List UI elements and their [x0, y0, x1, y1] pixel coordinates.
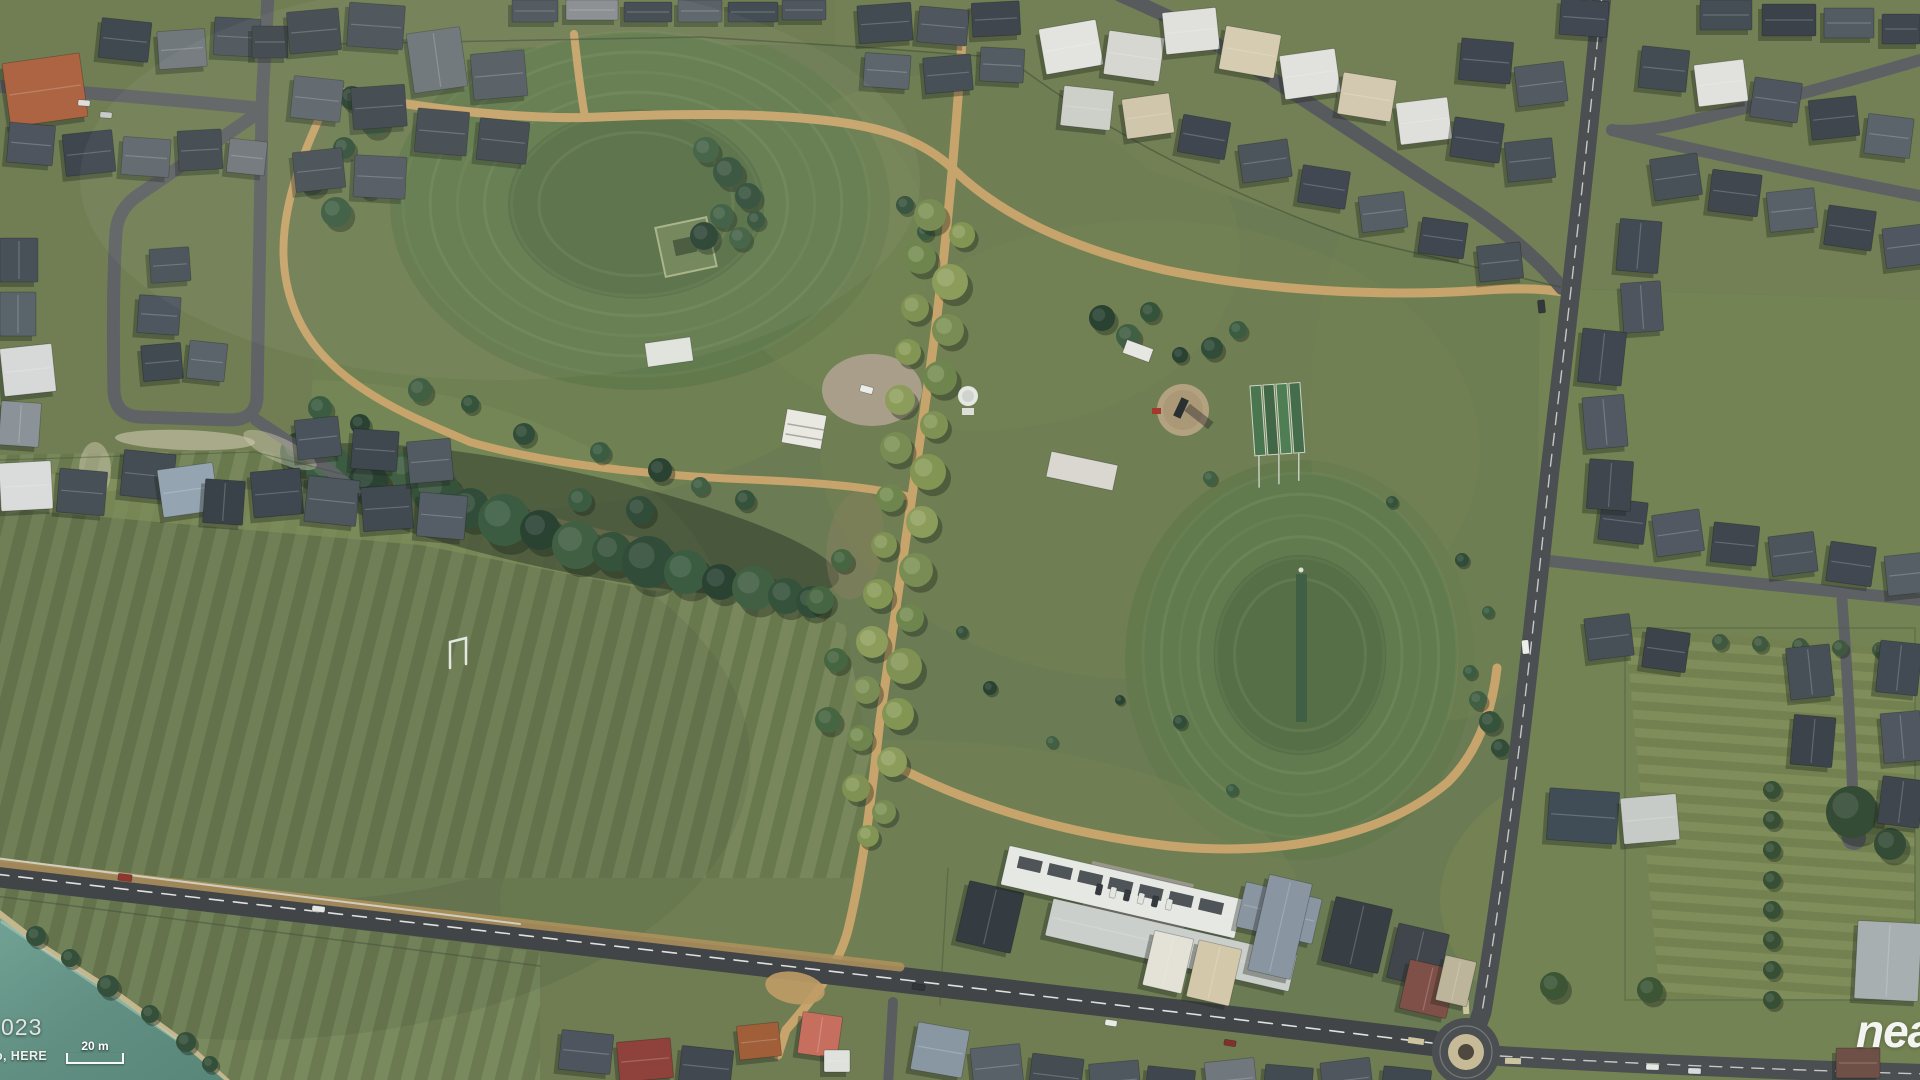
scale-bar-bracket: [66, 1053, 124, 1064]
scale-bar-label: 20 m: [66, 1040, 124, 1052]
aerial-map-canvas[interactable]: 023 o, HERE 20 m nea: [0, 0, 1920, 1080]
atmosphere-haze: [0, 0, 1920, 1080]
attribution-source: o, HERE: [0, 1049, 47, 1063]
satellite-imagery: [0, 0, 1920, 1080]
provider-watermark: nea: [1856, 1004, 1920, 1058]
attribution-year: 023: [1, 1014, 42, 1041]
map-scale-bar: 20 m: [66, 1040, 124, 1064]
